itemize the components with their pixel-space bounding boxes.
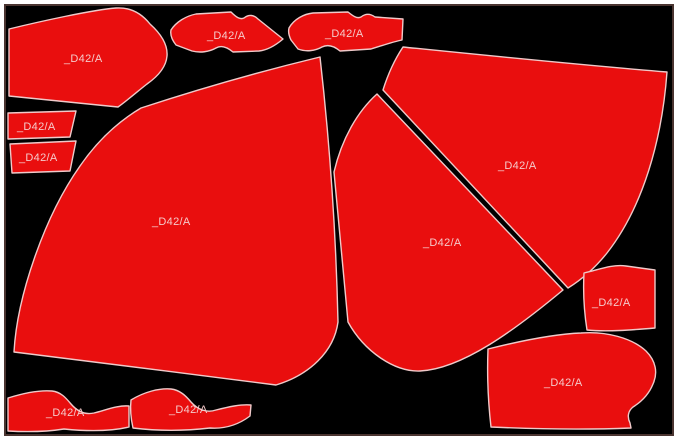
- marker-layout-window: _D42/A _D42/A _D42/A _D42/A _D42/A _D42/…: [0, 0, 678, 440]
- piece-label: _D42/A: [497, 160, 537, 172]
- piece-label: _D42/A: [422, 237, 462, 249]
- piece-label: _D42/A: [151, 216, 191, 228]
- piece-label: _D42/A: [63, 53, 103, 65]
- piece-label: _D42/A: [45, 407, 85, 419]
- piece-label: _D42/A: [206, 30, 246, 42]
- piece-label: _D42/A: [591, 297, 631, 309]
- piece-label: _D42/A: [324, 28, 364, 40]
- piece-label: _D42/A: [543, 377, 583, 389]
- piece-label: _D42/A: [18, 152, 58, 164]
- piece-label: _D42/A: [16, 121, 56, 133]
- piece-label: _D42/A: [168, 404, 208, 416]
- marker-canvas: _D42/A _D42/A _D42/A _D42/A _D42/A _D42/…: [0, 0, 678, 440]
